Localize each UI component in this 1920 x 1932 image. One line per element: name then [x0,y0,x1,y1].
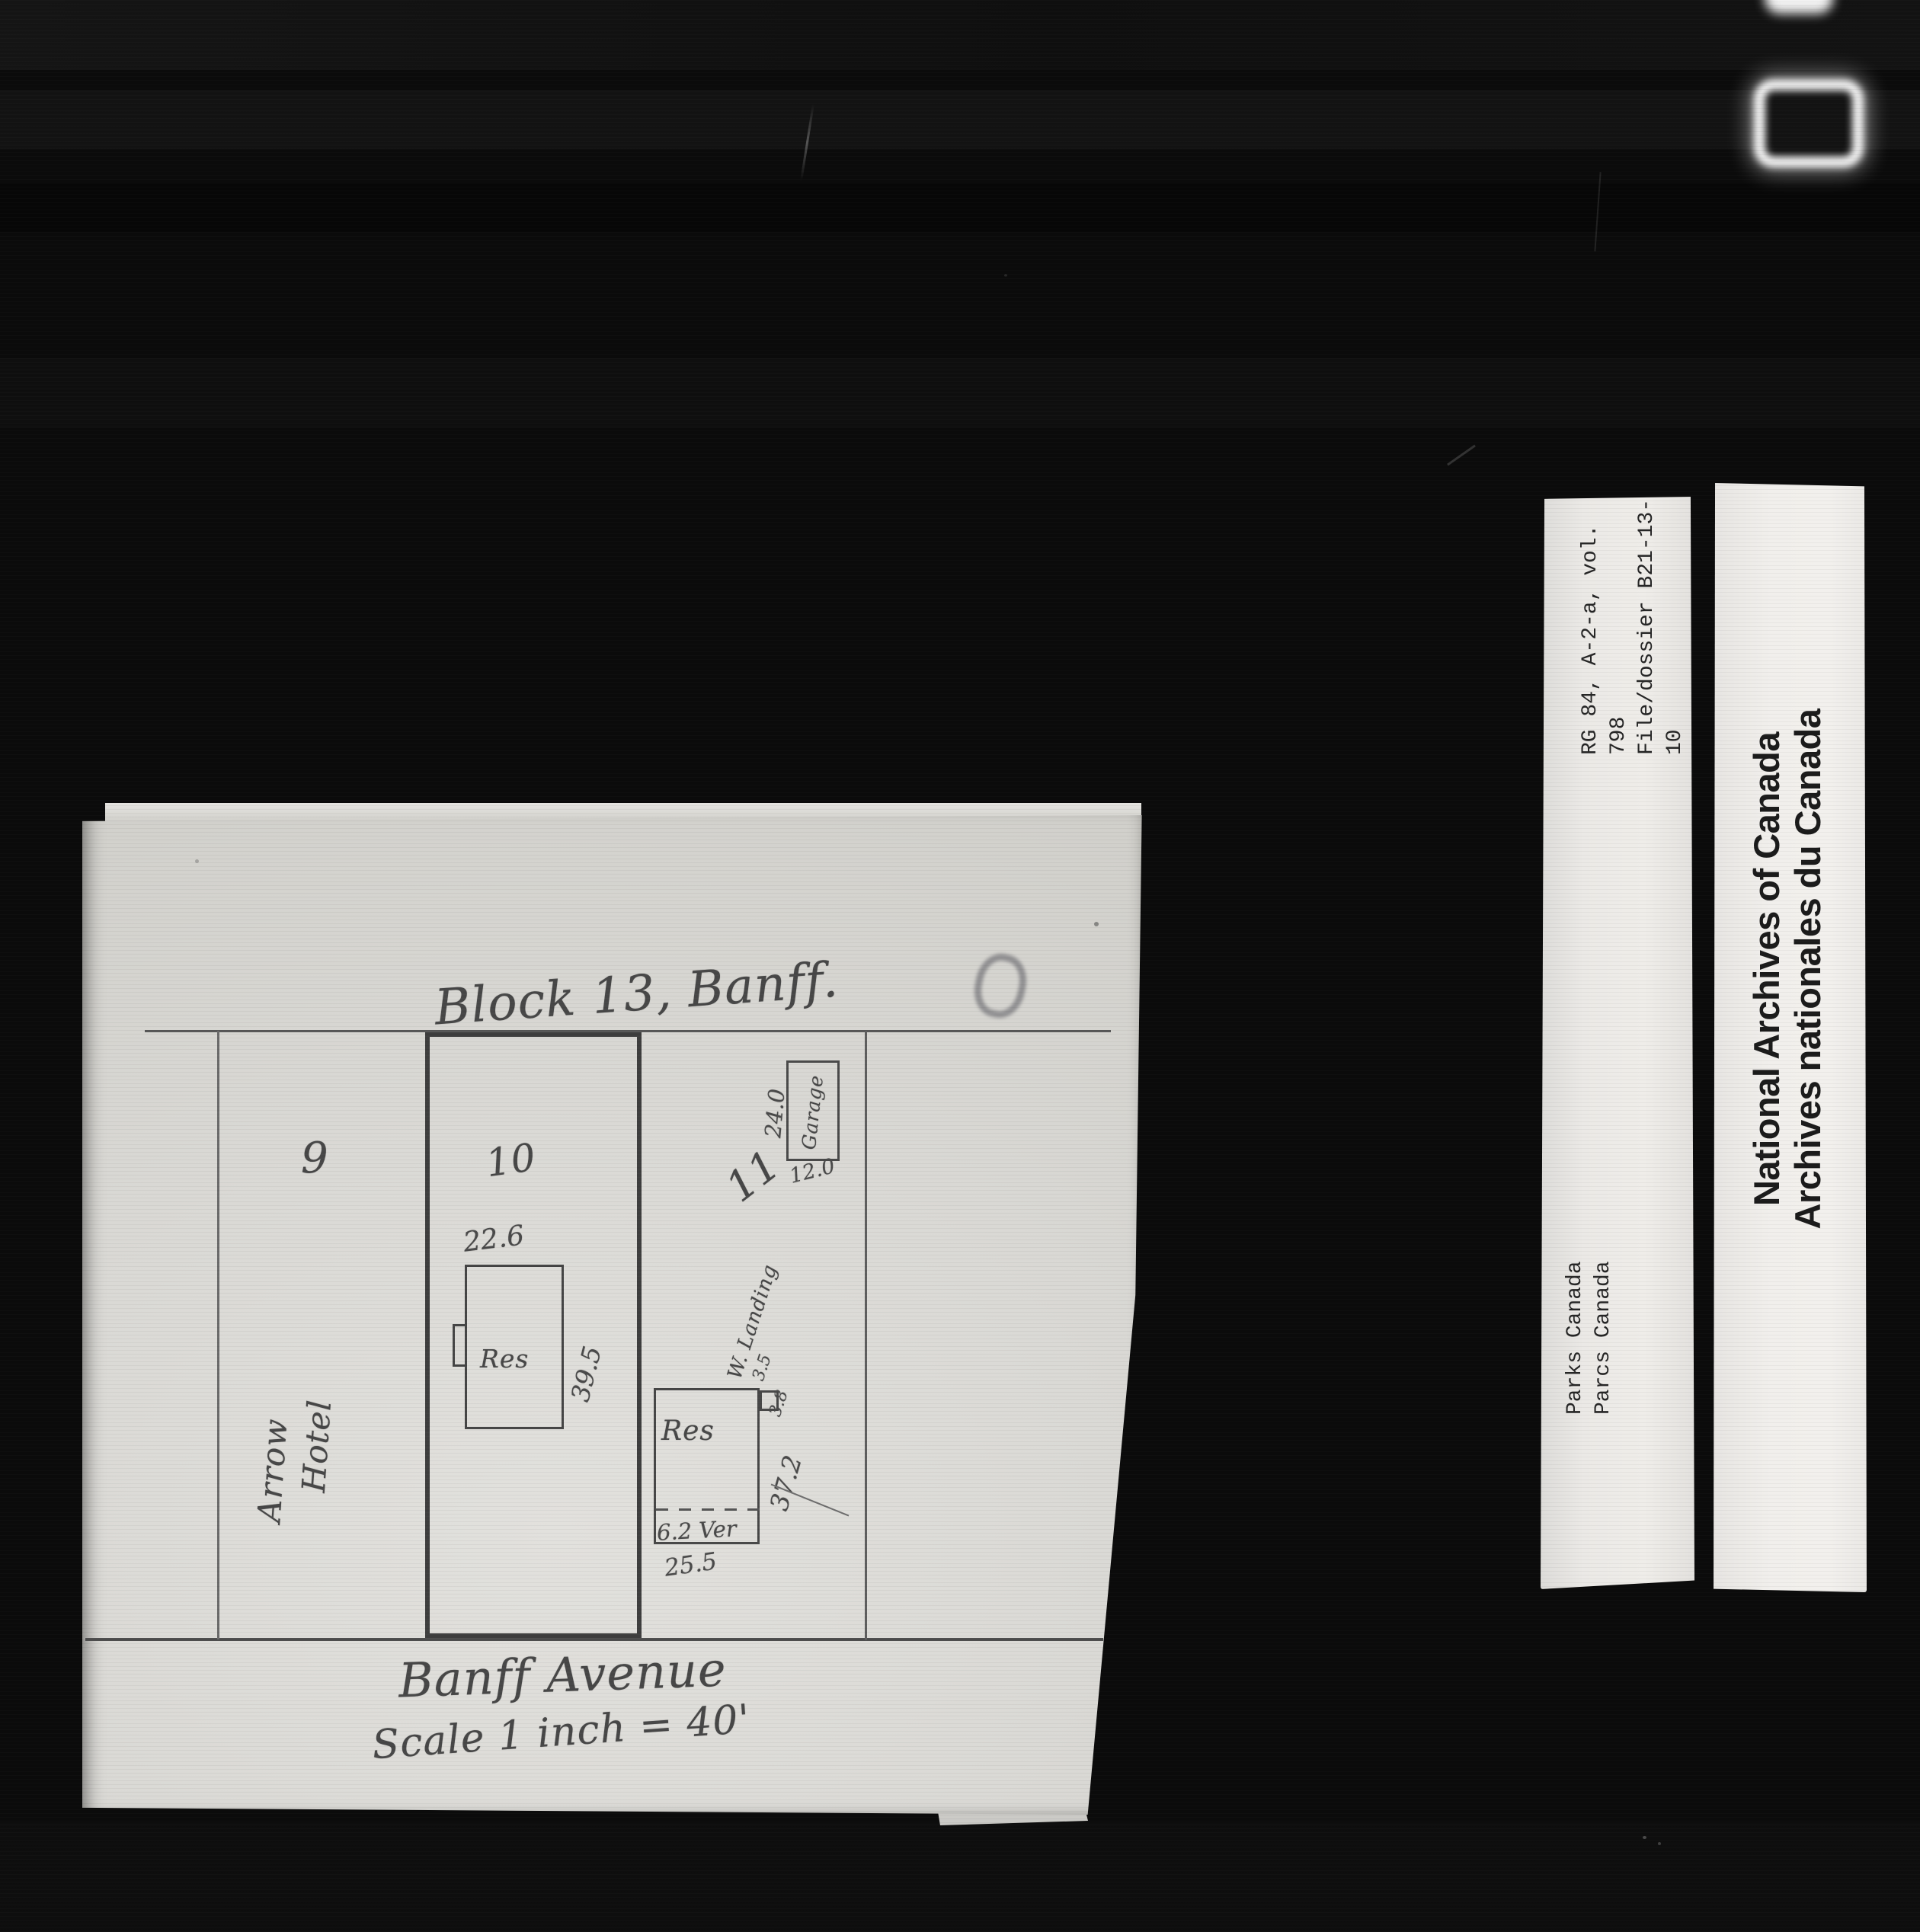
lot9-left-line [217,1031,219,1639]
film-speck-3 [1004,274,1007,277]
agency-text-block: Parks Canada Parcs Canada [1561,1255,1619,1415]
garage-outline: Garage [786,1060,840,1161]
sprocket-glow-top-icon [1765,0,1833,14]
film-band-dark [0,183,1920,232]
reference-line3: pt 2 [1689,481,1717,755]
archives-line2: Archives nationales du Canada [1787,680,1829,1259]
film-band-light [0,90,1920,149]
res10-bay [453,1324,465,1367]
res11-depth-dim: 37.2 [763,1452,808,1514]
res11-front-dim: 25.5 [663,1547,718,1582]
reference-text-block: RG 84, A-2-a, vol. 798 File/dossier B21-… [1576,481,1662,755]
archives-text-block: National Archives of Canada Archives nat… [1746,680,1832,1259]
film-band-top [0,0,1920,70]
res10-label: Res [480,1344,529,1374]
paper-speck-2 [195,859,199,863]
garage-dim-side-wrap: 24.0 [759,1080,784,1146]
film-scratch-vertical [800,104,814,181]
lot9-number: 9 [301,1134,329,1183]
film-band-mid [0,358,1920,428]
lot11-right-line [865,1031,867,1640]
punch-mark [969,949,1032,1022]
plan-paper: Block 13, Banff. 9 10 11 Arrow Hotel Gar… [82,815,1143,1815]
film-speck-1 [1643,1836,1646,1839]
agency-line1: Parks Canada [1561,1255,1589,1415]
reference-line2: File/dossier B21-13-10 [1633,481,1689,755]
res11-depth-wrap: 37.2 [762,1445,802,1518]
microfilm-frame: Block 13, Banff. 9 10 11 Arrow Hotel Gar… [0,0,1920,1932]
lot10-number: 10 [483,1135,539,1186]
res11-dashed-veranda-line [656,1508,760,1511]
sprocket-glow-ring-icon [1754,79,1864,168]
plan-title: Block 13, Banff. [433,952,840,1037]
archives-strip: National Archives of Canada Archives nat… [1713,483,1867,1592]
reference-line1: RG 84, A-2-a, vol. 798 [1576,481,1633,755]
reference-strip: RG 84, A-2-a, vol. 798 File/dossier B21-… [1541,497,1694,1589]
res11-veranda-label: 6.2 Ver [656,1515,737,1545]
film-scratch-check [1447,445,1476,466]
street-line [85,1638,1103,1641]
lot11-number: 11 [717,1140,789,1211]
hotel-name-line2: Hotel [293,1368,341,1523]
archives-line1: National Archives of Canada [1746,680,1787,1259]
hotel-name-line1-text: Arrow [250,1417,294,1524]
res11-label: Res [661,1415,715,1447]
hotel-name-line2-text: Hotel [295,1398,338,1493]
film-band-bottom [0,1822,1920,1932]
film-scratch-thin [1594,172,1601,251]
hotel-name-line1: Arrow [248,1393,297,1547]
paper-speck-1 [1094,922,1099,926]
street-label: Banff Avenue [398,1642,728,1709]
agency-line2: Parcs Canada [1589,1255,1618,1415]
garage-label: Garage [798,1073,827,1150]
film-speck-2 [1658,1842,1661,1845]
garage-dim-side: 24.0 [760,1088,789,1139]
